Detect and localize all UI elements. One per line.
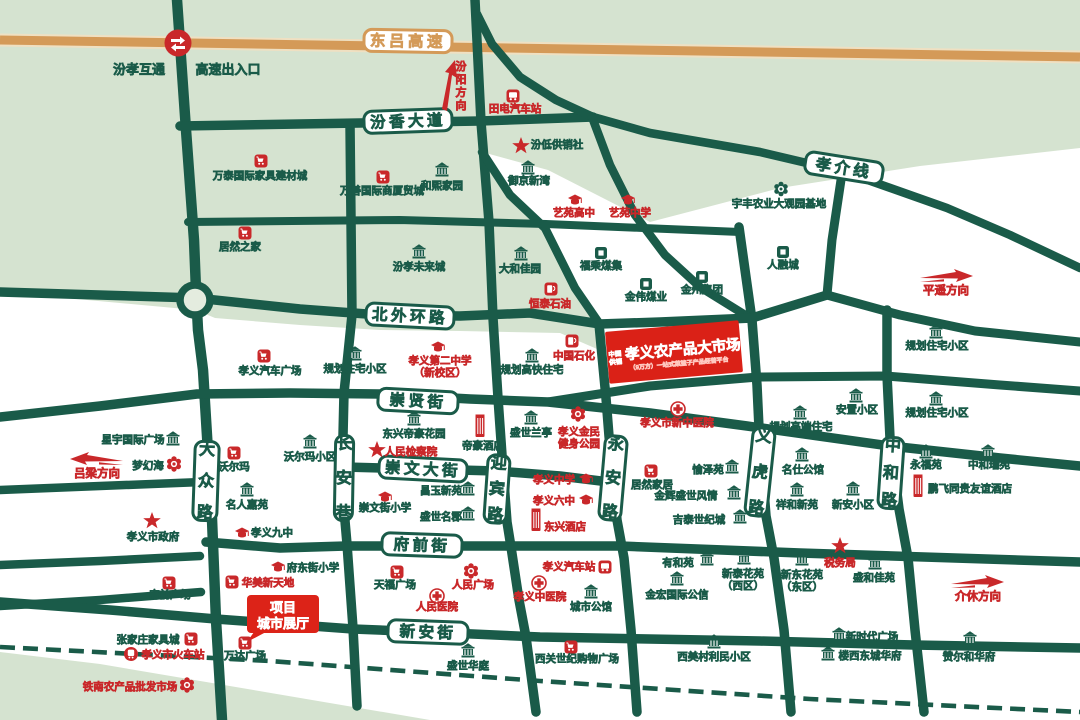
- svg-text:永: 永: [606, 434, 625, 454]
- svg-text:恒泰石油: 恒泰石油: [529, 297, 571, 310]
- svg-text:府前广场: 府前广场: [149, 588, 191, 601]
- svg-text:名人嘉苑: 名人嘉苑: [226, 498, 268, 511]
- svg-text:梦幻海: 梦幻海: [132, 459, 164, 472]
- svg-text:安: 安: [336, 468, 352, 487]
- svg-text:巷: 巷: [334, 503, 352, 522]
- svg-text:规划高快住宅: 规划高快住宅: [501, 363, 564, 376]
- svg-text:高速出入口: 高速出入口: [195, 62, 260, 77]
- svg-text:田电汽车站: 田电汽车站: [489, 102, 542, 115]
- svg-text:西关世纪购物广场: 西关世纪购物广场: [535, 652, 619, 665]
- svg-text:金伟煤业: 金伟煤业: [624, 290, 667, 303]
- svg-text:崇文街小学: 崇文街小学: [359, 501, 412, 514]
- svg-text:安: 安: [604, 468, 622, 488]
- svg-text:孝义中学: 孝义中学: [532, 473, 575, 486]
- svg-text:铁南农产品批发市场: 铁南农产品批发市场: [83, 680, 178, 693]
- svg-text:和熙家园: 和熙家园: [420, 179, 463, 192]
- svg-text:赞尔和华府: 赞尔和华府: [942, 650, 996, 663]
- svg-text:吕梁方向: 吕梁方向: [74, 466, 120, 480]
- svg-text:东吕高速: 东吕高速: [370, 31, 446, 51]
- svg-text:孝义汽车站: 孝义汽车站: [542, 560, 596, 573]
- svg-text:金宏国际公信: 金宏国际公信: [645, 588, 709, 601]
- svg-text:盛世兰亭: 盛世兰亭: [510, 426, 552, 439]
- svg-text:人民医院: 人民医院: [416, 600, 458, 613]
- svg-text:大: 大: [199, 439, 216, 459]
- svg-text:路: 路: [487, 505, 505, 525]
- svg-text:新安小区: 新安小区: [832, 498, 874, 511]
- svg-text:新安街: 新安街: [399, 621, 457, 642]
- svg-text:人民检察院: 人民检察院: [385, 445, 438, 458]
- svg-text:长: 长: [336, 434, 353, 453]
- svg-text:府东街小学: 府东街小学: [287, 561, 340, 574]
- svg-text:孝义金民: 孝义金民: [557, 425, 600, 438]
- svg-text:中: 中: [884, 435, 901, 455]
- svg-text:张家庄家具城: 张家庄家具城: [117, 633, 180, 646]
- svg-text:盛世华庭: 盛世华庭: [447, 659, 489, 672]
- svg-text:万善国际商厦贸城: 万善国际商厦贸城: [339, 184, 424, 197]
- svg-text:居然之家: 居然之家: [219, 240, 261, 253]
- svg-text:东兴酒店: 东兴酒店: [544, 520, 586, 533]
- svg-text:路: 路: [880, 490, 898, 510]
- svg-text:西美村利民小区: 西美村利民小区: [677, 650, 751, 663]
- svg-text:府前街: 府前街: [393, 534, 451, 555]
- svg-text:税务局: 税务局: [824, 556, 856, 569]
- svg-text:沃尔玛: 沃尔玛: [218, 460, 250, 473]
- svg-text:（新校区）: （新校区）: [414, 366, 467, 379]
- svg-text:平遥方向: 平遥方向: [923, 283, 969, 297]
- svg-text:孝义市新中医院: 孝义市新中医院: [639, 416, 714, 429]
- svg-text:虎: 虎: [751, 462, 769, 482]
- svg-text:帝豪酒店: 帝豪酒店: [462, 439, 504, 452]
- svg-text:御京新湾: 御京新湾: [507, 174, 550, 187]
- svg-text:向: 向: [456, 98, 467, 112]
- svg-text:万达广场: 万达广场: [223, 649, 266, 662]
- svg-text:路: 路: [747, 497, 766, 518]
- svg-text:万泰国际家具建材城: 万泰国际家具建材城: [212, 169, 308, 182]
- svg-text:孝义市火车站: 孝义市火车站: [141, 648, 205, 661]
- svg-text:汾孝互通: 汾孝互通: [113, 62, 165, 77]
- svg-text:新泰花苑: 新泰花苑: [722, 567, 764, 580]
- svg-text:金州集团: 金州集团: [680, 283, 723, 296]
- svg-text:新时代广场: 新时代广场: [846, 630, 899, 643]
- svg-text:城市展厅: 城市展厅: [257, 616, 309, 631]
- svg-text:名仕公馆: 名仕公馆: [782, 463, 824, 476]
- svg-text:艺苑中学: 艺苑中学: [609, 206, 651, 219]
- svg-text:路: 路: [197, 502, 215, 522]
- svg-text:（西区）: （西区）: [722, 579, 764, 592]
- svg-text:人融城: 人融城: [767, 258, 799, 271]
- svg-text:金辉盛世风情: 金辉盛世风情: [654, 489, 718, 502]
- svg-text:沃尔玛小区: 沃尔玛小区: [284, 450, 337, 463]
- svg-text:迎: 迎: [490, 453, 507, 473]
- svg-text:孝义市政府: 孝义市政府: [126, 530, 180, 543]
- svg-text:有和苑: 有和苑: [662, 556, 694, 569]
- svg-text:华美新天地: 华美新天地: [242, 576, 295, 589]
- svg-text:汾孝未来城: 汾孝未来城: [393, 260, 446, 273]
- svg-text:大和佳园: 大和佳园: [499, 262, 541, 275]
- svg-text:孝义汽车广场: 孝义汽车广场: [238, 364, 302, 377]
- svg-text:介休方向: 介休方向: [954, 589, 1001, 603]
- svg-text:阳: 阳: [456, 72, 467, 86]
- svg-text:吉泰世纪城: 吉泰世纪城: [673, 513, 726, 526]
- svg-text:中国石化: 中国石化: [553, 349, 595, 362]
- svg-text:楼西东城华府: 楼西东城华府: [839, 649, 902, 662]
- svg-text:众: 众: [198, 471, 216, 491]
- svg-text:路: 路: [601, 501, 620, 521]
- svg-text:规划高端住宅: 规划高端住宅: [770, 420, 833, 433]
- svg-text:福乘煤集: 福乘煤集: [579, 259, 622, 272]
- svg-text:（东区）: （东区）: [781, 580, 823, 593]
- svg-text:孝义第二中学: 孝义第二中学: [408, 354, 472, 367]
- svg-text:人民广场: 人民广场: [452, 578, 494, 591]
- svg-text:永福苑: 永福苑: [909, 458, 942, 471]
- svg-text:孝义九中: 孝义九中: [250, 526, 293, 539]
- svg-text:中和瑞苑: 中和瑞苑: [968, 458, 1010, 471]
- svg-text:宾: 宾: [488, 479, 505, 499]
- svg-text:方: 方: [456, 85, 467, 99]
- svg-text:孝义中医院: 孝义中医院: [513, 590, 567, 603]
- svg-text:城市公馆: 城市公馆: [570, 600, 612, 613]
- svg-text:星宇国际广场: 星宇国际广场: [102, 433, 165, 446]
- svg-text:规划住宅小区: 规划住宅小区: [906, 406, 969, 419]
- svg-text:汾低供销社: 汾低供销社: [531, 138, 584, 151]
- svg-text:新东花苑: 新东花苑: [781, 568, 823, 581]
- svg-text:艺苑高中: 艺苑高中: [553, 206, 595, 219]
- svg-text:宇丰农业大观园基地: 宇丰农业大观园基地: [732, 197, 827, 210]
- svg-text:项目: 项目: [270, 600, 296, 615]
- svg-text:和: 和: [882, 463, 899, 483]
- svg-text:天福广场: 天福广场: [374, 578, 416, 591]
- svg-text:盛世名郡: 盛世名郡: [420, 510, 462, 523]
- svg-text:规划住宅小区: 规划住宅小区: [906, 339, 969, 352]
- svg-text:东兴帝豪花园: 东兴帝豪花园: [383, 427, 446, 440]
- svg-text:安置小区: 安置小区: [836, 403, 878, 416]
- svg-text:规划住宅小区: 规划住宅小区: [324, 362, 387, 375]
- svg-text:汾: 汾: [456, 59, 467, 73]
- svg-text:愉泽苑: 愉泽苑: [692, 463, 724, 476]
- svg-text:孝义六中: 孝义六中: [532, 494, 575, 507]
- svg-text:盛和佳苑: 盛和佳苑: [853, 571, 895, 584]
- svg-text:昌玉新苑: 昌玉新苑: [420, 484, 462, 497]
- svg-text:健身公园: 健身公园: [558, 437, 600, 450]
- svg-text:鹏飞同贵友谊酒店: 鹏飞同贵友谊酒店: [928, 482, 1012, 495]
- svg-text:祥和新苑: 祥和新苑: [776, 498, 818, 511]
